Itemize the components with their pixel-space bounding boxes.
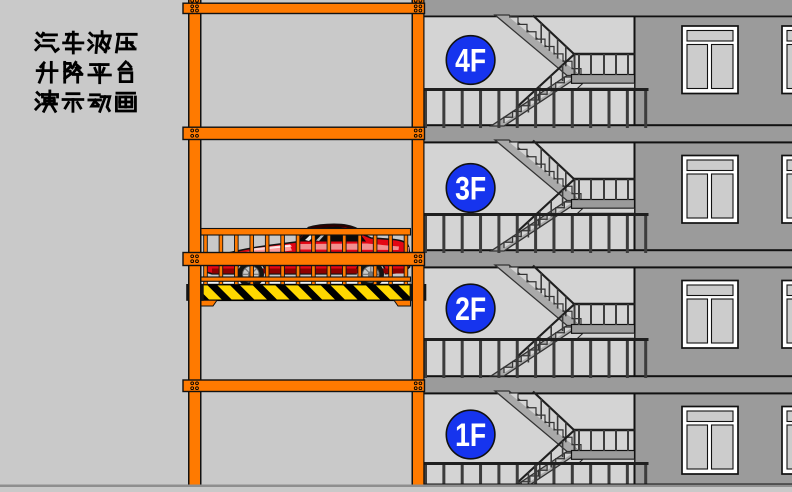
svg-text:2F: 2F bbox=[455, 291, 486, 327]
svg-text:3F: 3F bbox=[455, 171, 486, 207]
svg-text:4F: 4F bbox=[455, 43, 486, 79]
svg-text:1F: 1F bbox=[455, 417, 486, 453]
